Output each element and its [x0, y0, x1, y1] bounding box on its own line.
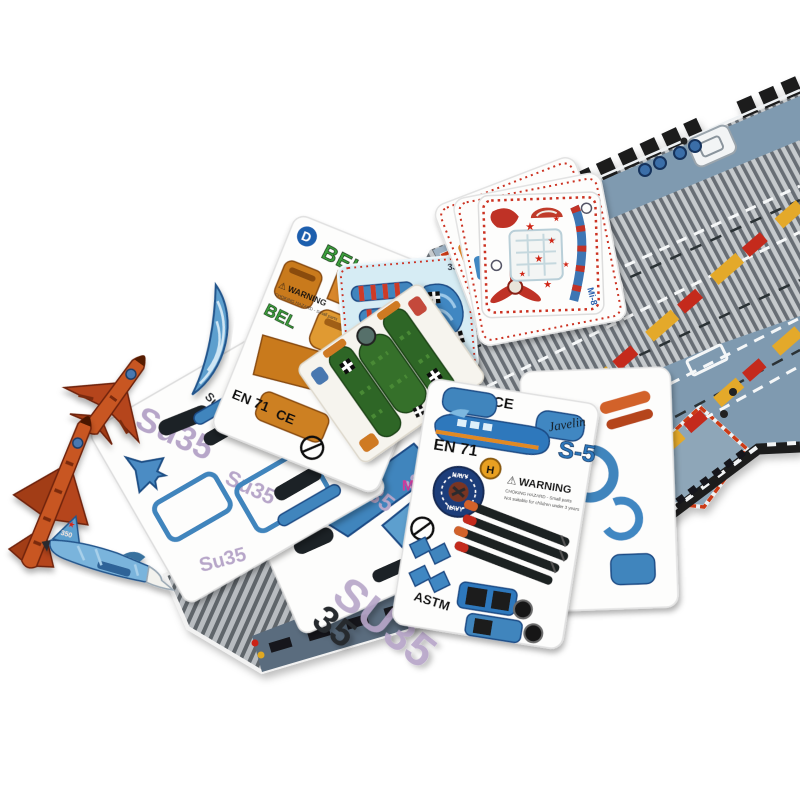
- scene-svg: SU35 Su35 Su35 35 M Su35 Su35 Su35 Su35 …: [0, 0, 800, 800]
- svg-text:★: ★: [553, 214, 560, 223]
- svg-text:★: ★: [547, 235, 555, 245]
- svg-text:★: ★: [519, 269, 526, 278]
- svg-text:★: ★: [534, 254, 543, 265]
- product-photo: SU35 Su35 Su35 35 M Su35 Su35 Su35 Su35 …: [0, 0, 800, 800]
- heli-card: ★ ★ ★ ★ ★ ★ ★ Mi-8: [478, 192, 604, 318]
- hull-dot-yellow: [258, 652, 265, 659]
- svg-text:★: ★: [543, 279, 552, 290]
- svg-text:★: ★: [525, 221, 535, 233]
- svg-text:★: ★: [562, 260, 569, 269]
- javelin-model: S-5: [556, 436, 597, 469]
- warning-triangle-icon: ⚠: [506, 474, 518, 487]
- hull-dot-red: [252, 640, 259, 647]
- part-blob-blue: [610, 553, 655, 585]
